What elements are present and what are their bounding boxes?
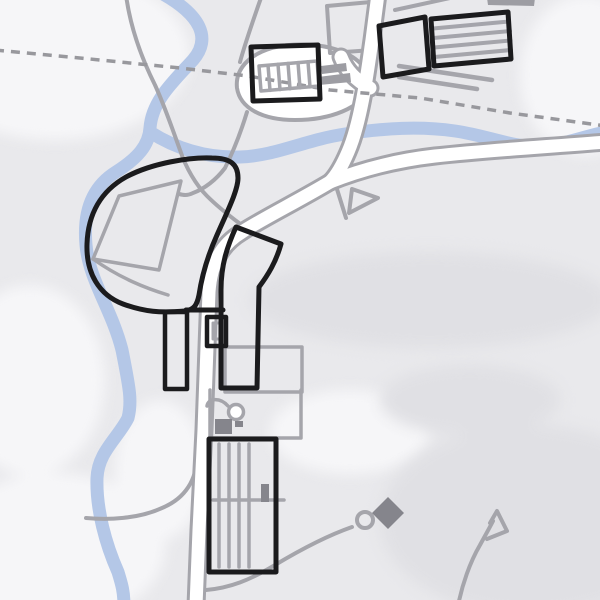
top-edge-strip: [487, 0, 535, 6]
shed-dark-rect: [261, 484, 269, 502]
map-canvas[interactable]: [0, 0, 600, 600]
ring-symbol: [229, 405, 244, 420]
map-svg: [0, 0, 600, 600]
dark-square-marker: [215, 419, 232, 434]
dark-square-small: [235, 421, 243, 427]
